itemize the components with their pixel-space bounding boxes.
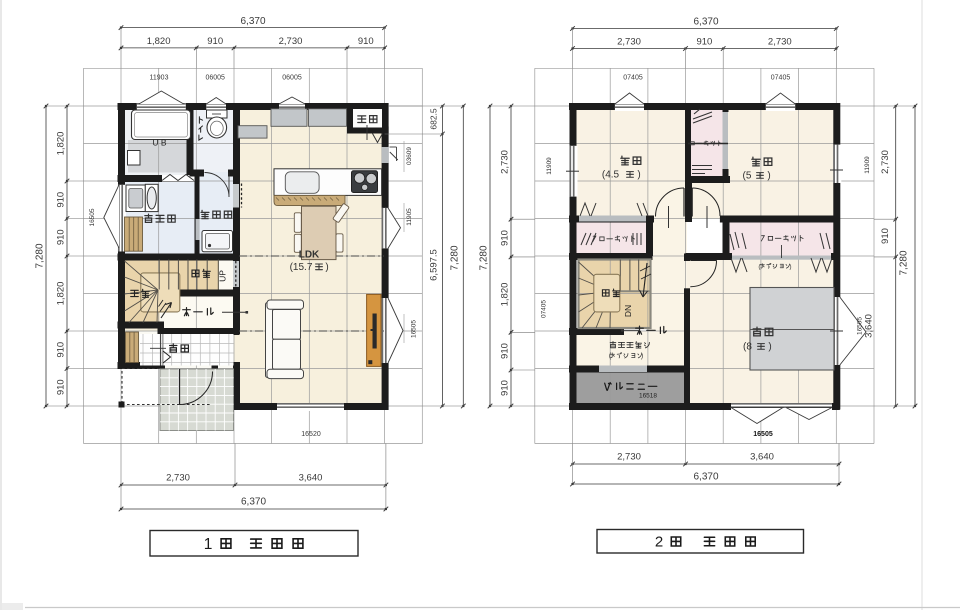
svg-text:1,820: 1,820 [56,132,67,156]
svg-text:3,640: 3,640 [750,452,774,463]
svg-text:11909: 11909 [546,157,553,175]
svg-text:06005: 06005 [205,75,225,82]
svg-text:7,280: 7,280 [35,243,46,268]
svg-text:03609: 03609 [406,147,413,165]
svg-text:07405: 07405 [623,75,643,82]
svg-text:): ) [768,342,771,353]
svg-text:16505: 16505 [411,320,418,338]
svg-text:910: 910 [500,230,511,246]
svg-text:2,730: 2,730 [166,473,190,484]
svg-text:1,820: 1,820 [500,283,511,307]
svg-text:(8: (8 [743,342,752,353]
svg-text:7,280: 7,280 [479,245,490,270]
svg-text:11903: 11903 [150,75,169,82]
svg-text:2,730: 2,730 [880,150,891,174]
svg-text:16518: 16518 [639,393,657,400]
svg-text:3,640: 3,640 [299,473,323,484]
svg-text:LDK: LDK [299,250,320,261]
svg-text:): ) [767,171,770,182]
svg-text:): ) [641,353,643,360]
svg-text:910: 910 [696,37,712,48]
svg-text:): ) [637,170,640,181]
svg-text:910: 910 [207,36,223,47]
svg-text:2: 2 [655,534,663,551]
svg-text:3,640: 3,640 [864,314,875,338]
svg-text:6,370: 6,370 [241,497,266,508]
svg-text:U B: U B [152,138,167,148]
svg-text:): ) [325,262,328,273]
svg-text:910: 910 [56,229,67,245]
svg-text:2,730: 2,730 [617,37,641,48]
svg-text:DN: DN [623,305,633,317]
svg-text:11909: 11909 [864,156,871,174]
svg-text:1,820: 1,820 [147,36,171,47]
svg-text:7,280: 7,280 [450,245,461,270]
svg-text:(4.5: (4.5 [602,170,620,181]
svg-text:07405: 07405 [771,75,791,82]
svg-text:06005: 06005 [282,75,302,82]
svg-text:2,730: 2,730 [768,37,792,48]
svg-text:(15.7: (15.7 [290,262,313,273]
svg-text:2,730: 2,730 [500,150,511,174]
svg-text:16520: 16520 [301,431,321,438]
svg-text:16505: 16505 [857,317,864,335]
svg-text:11905: 11905 [406,208,413,226]
svg-text:910: 910 [500,380,511,396]
svg-text:16505: 16505 [753,431,773,438]
svg-text:910: 910 [358,36,374,47]
svg-text:2,730: 2,730 [279,36,303,47]
svg-text:1: 1 [204,536,213,553]
svg-text:910: 910 [56,192,67,208]
svg-text:UP: UP [218,270,228,282]
svg-text:682.5: 682.5 [429,108,439,130]
svg-text:6,370: 6,370 [693,17,718,28]
svg-text:6,597.5: 6,597.5 [429,249,440,281]
svg-text:7,280: 7,280 [899,250,910,275]
svg-text:910: 910 [56,379,67,395]
svg-text:): ) [789,264,791,271]
svg-text:(5: (5 [743,171,752,182]
svg-text:910: 910 [880,228,891,244]
svg-text:6,370: 6,370 [240,16,265,27]
svg-text:07405: 07405 [541,300,548,318]
svg-text:2,730: 2,730 [617,452,641,463]
svg-text:910: 910 [56,342,67,358]
svg-text:16505: 16505 [89,208,96,226]
svg-text:910: 910 [500,343,511,359]
svg-text:6,370: 6,370 [693,472,718,483]
svg-text:1,820: 1,820 [56,282,67,306]
